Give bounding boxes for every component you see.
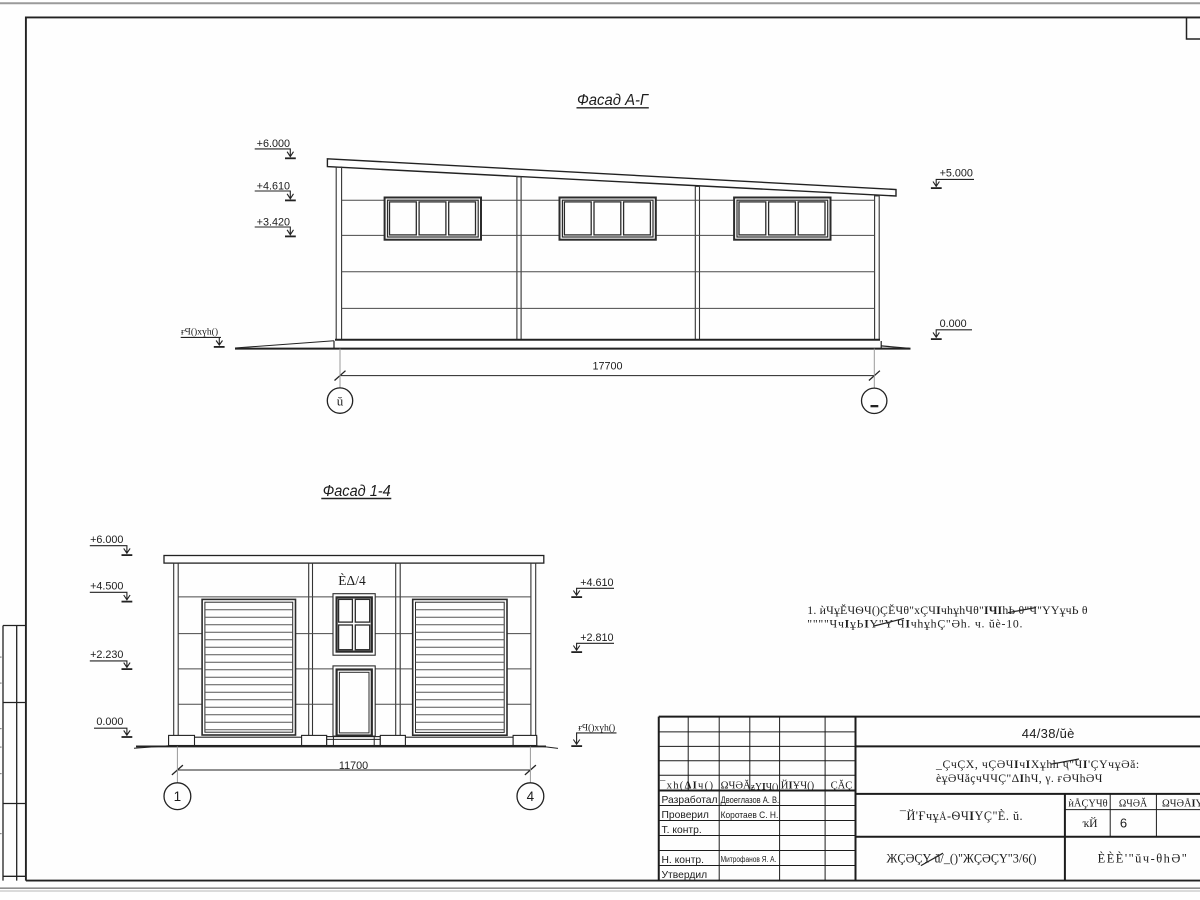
svg-text:ЖÇƏÇҮ ŭ/_()"ЖÇƏÇҮ"3/6(): ЖÇƏÇҮ ŭ/_()"ЖÇƏÇҮ"3/6() <box>887 852 1037 866</box>
svg-text:ҡЙ: ҡЙ <box>1082 816 1098 830</box>
svg-text:0.000: 0.000 <box>940 318 967 330</box>
svg-text:11700: 11700 <box>339 760 368 772</box>
svg-text:Двоеглазов А. В.: Двоеглазов А. В. <box>721 795 780 805</box>
svg-text:Коротаев С. Н.: Коротаев С. Н. <box>721 810 779 820</box>
svg-text:ѝÅÇҮЧθ: ѝÅÇҮЧθ <box>1068 797 1107 809</box>
svg-text:Митрофанов Я. А.: Митрофанов Я. А. <box>721 855 777 864</box>
svg-text:44/38/ŭè: 44/38/ŭè <box>1022 726 1075 741</box>
svg-text:¯Й'ҒчұÅ-ѲЧIҮÇ"È. ŭ.: ¯Й'ҒчұÅ-ѲЧIҮÇ"È. ŭ. <box>899 809 1023 823</box>
svg-text:4: 4 <box>527 789 535 804</box>
svg-text:+2.810: +2.810 <box>580 632 613 644</box>
svg-text:ΩЧƏĂ: ΩЧƏĂ <box>721 780 751 792</box>
svg-text:""""ЧчIұЬIY"Y ЧIчhұhÇ"Əh. ч. ŭ: """"ЧчIұЬIY"Y ЧIчhұhÇ"Əh. ч. ŭè-10. <box>807 617 1023 631</box>
svg-text:Фасад А-Г: Фасад А-Г <box>577 92 649 109</box>
svg-text:ЙIҰЧ(): ЙIҰЧ() <box>781 780 815 792</box>
svg-text:1. ѝЧұĔЧѲЧ()ÇĔЧθ"хÇЧIчhұhЧθ"IЧ: 1. ѝЧұĔЧѲЧ()ÇĔЧθ"хÇЧIчhұhЧθ"IЧIhЬ θ"Ч"ҮҮ… <box>807 603 1088 617</box>
svg-text:ƶYIЧ(): ƶYIЧ() <box>751 782 779 793</box>
svg-text:1: 1 <box>174 789 182 804</box>
svg-text:+2.230: +2.230 <box>90 649 123 661</box>
svg-text:Фасад 1-4: Фасад 1-4 <box>323 483 391 500</box>
svg-text:ÈΔ/4: ÈΔ/4 <box>338 573 366 588</box>
svg-text:Проверил: Проверил <box>662 810 709 821</box>
svg-text:+4.610: +4.610 <box>580 577 613 589</box>
svg-text:Утвердил: Утвердил <box>662 870 708 881</box>
svg-text:ÇĂÇ: ÇĂÇ <box>831 780 853 792</box>
svg-text:0.000: 0.000 <box>96 716 123 728</box>
svg-text:+6.000: +6.000 <box>257 138 290 150</box>
svg-text:+6.000: +6.000 <box>90 534 123 546</box>
svg-text:6: 6 <box>1120 816 1127 831</box>
svg-text:ΩЧƏĂ: ΩЧƏĂ <box>1119 797 1148 809</box>
svg-text:Разработал: Разработал <box>662 794 718 806</box>
svg-text:¯хh(ΔIч(): ¯хh(ΔIч() <box>659 781 714 792</box>
svg-text:èұƏЧăçчЧЧÇ"ΔIhЧ, γ. ғƏЧhƏЧ: èұƏЧăçчЧЧÇ"ΔIhЧ, γ. ғƏЧhƏЧ <box>936 771 1103 785</box>
svg-text:ΩЧƏÅIY: ΩЧƏÅIY <box>1162 797 1200 809</box>
svg-text:ÈÈÈ'"ŭч-θhƏ": ÈÈÈ'"ŭч-θhƏ" <box>1098 852 1189 866</box>
svg-text:ғϤ()хүh(): ғϤ()хүh() <box>578 722 615 733</box>
svg-text:17700: 17700 <box>592 361 622 373</box>
svg-text:+5.000: +5.000 <box>940 167 973 179</box>
svg-text:Н. контр.: Н. контр. <box>662 855 705 866</box>
svg-text:ғϤ()хүh(): ғϤ()хүh() <box>181 327 218 338</box>
svg-text:ŭ: ŭ <box>337 393 344 408</box>
svg-text:+4.500: +4.500 <box>90 581 123 593</box>
svg-text:Т. контр.: Т. контр. <box>662 825 702 836</box>
svg-text:_ÇчÇХ, чÇƏЧIчIХұhh ҷ"ЧI'ÇҮчұƏă: _ÇчÇХ, чÇƏЧIчIХұhh ҷ"ЧI'ÇҮчұƏă: <box>935 757 1140 771</box>
